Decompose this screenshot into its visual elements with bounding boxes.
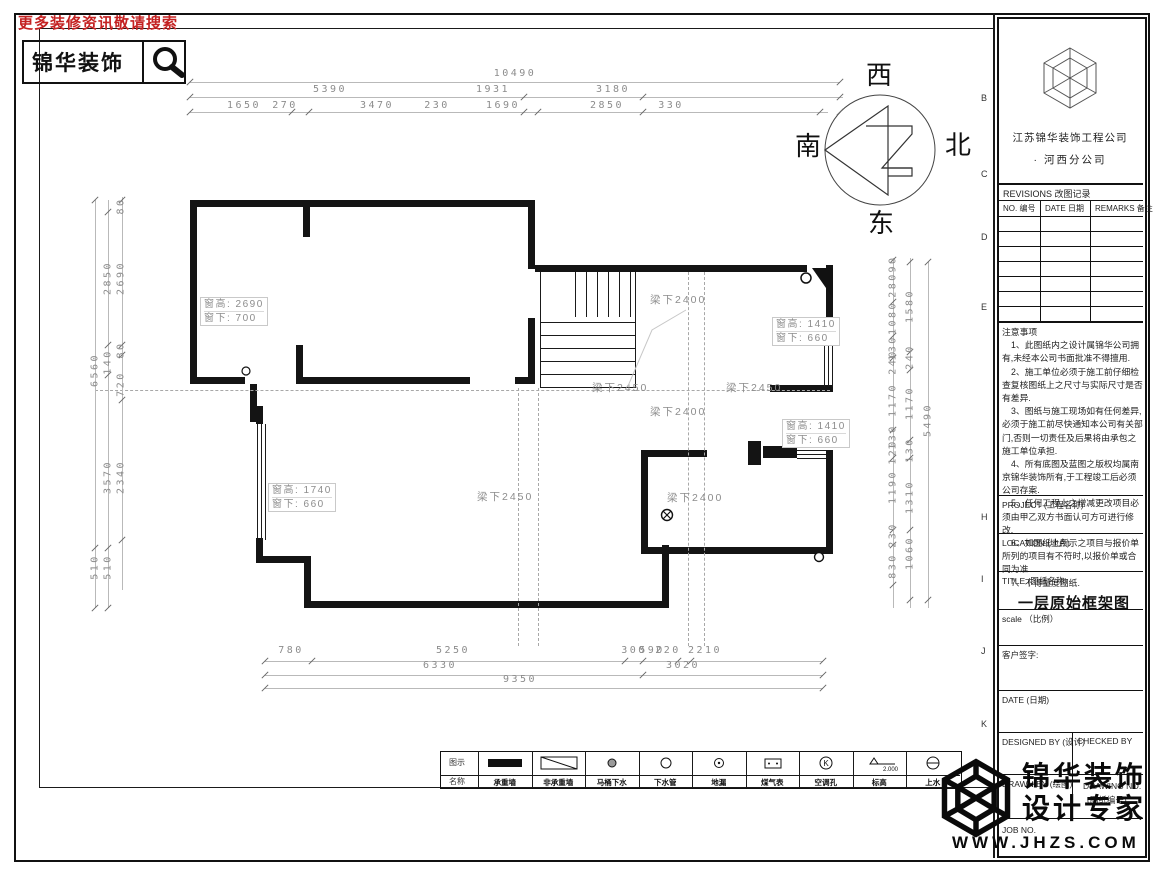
footer-brand-line1: 锦华装饰 (1022, 762, 1146, 792)
panel-field-label: DATE (日期) (1002, 694, 1049, 706)
footer-cube-logo (936, 758, 1016, 838)
notes-block: 注意事项 1、此图纸内之设计属锦华公司拥有,未经本公司书面批准不得擅用.2、施工… (1002, 326, 1144, 590)
notes-title: 注意事项 (1002, 326, 1144, 339)
revisions-column-header: REMARKS 备注 (1095, 203, 1153, 214)
legend-col-line (585, 751, 586, 787)
panel-field-label: scale （比例） (1002, 613, 1058, 625)
legend-item-name: 标高 (872, 777, 887, 788)
legend-col-line (906, 751, 907, 787)
door-leaf-symbol (812, 268, 833, 298)
zone-letter: K (981, 719, 987, 729)
legend-item-name: 地漏 (711, 777, 726, 788)
zone-letter: H (981, 512, 988, 522)
panel-row-line (997, 732, 1143, 733)
pipe-symbol (801, 273, 811, 283)
window-label: 窗高: 2690窗下: 700 (200, 297, 268, 326)
stair-walkline (628, 310, 686, 386)
zone-letter: J (981, 646, 986, 656)
sheet-title: 一层原始框架图 (1018, 592, 1130, 613)
legend-item-name: 非承重墙 (543, 777, 573, 788)
legend-symbol-meter-box (750, 752, 796, 774)
company-name: 江苏锦华装饰工程公司 (1002, 130, 1138, 145)
note-item: 4、所有底图及蓝图之版权均属南京锦华装饰所有,于工程竣工后必须公司存案. (1002, 458, 1144, 498)
revisions-row-line (997, 261, 1143, 262)
note-item: 1、此图纸内之设计属锦华公司拥有,未经本公司书面批准不得擅用. (1002, 339, 1144, 365)
zone-letter: C (981, 169, 988, 179)
company-cube-logo (1038, 45, 1102, 111)
footer-website: WWW.JHZS.COM (952, 833, 1140, 853)
svg-text:K: K (823, 759, 829, 768)
zone-letter: I (981, 574, 984, 584)
zone-letter: D (981, 232, 988, 242)
legend-symbol-k-circle: K (803, 752, 849, 774)
revisions-header: REVISIONS 改图记录 (1003, 187, 1091, 200)
legend-name-row-label: 名称 (449, 776, 465, 787)
plan-symbols (0, 0, 1158, 873)
revisions-row-line (997, 291, 1143, 292)
legend-col-line (746, 751, 747, 787)
legend-symbol-circle (643, 752, 689, 774)
legend-item-name: 下水管 (654, 777, 677, 788)
legend-item-name: 马桶下水 (597, 777, 627, 788)
zone-letter: B (981, 93, 987, 103)
revisions-row-line (997, 246, 1143, 247)
revisions-row-line (997, 276, 1143, 277)
legend-item-name: 承重墙 (494, 777, 517, 788)
note-item: 6、如图纸上所示之项目与报价单所列的项目有不符时,以报价单或合同为准. (1002, 537, 1144, 577)
legend-symbol-diag-wall (536, 752, 582, 774)
panel-row-line (997, 645, 1143, 646)
legend-col-line (799, 751, 800, 787)
company-branch: · 河西分公司 (1002, 152, 1138, 167)
drawing-sheet: 更多装修资讯敬请搜索 锦华装饰 西 南 北 东 1049053901931318… (0, 0, 1158, 873)
legend-symbol-solid-wall (482, 752, 528, 774)
legend-col-line (692, 751, 693, 787)
legend-row-line (440, 775, 960, 776)
window-label: 窗高: 1410窗下: 660 (782, 419, 850, 448)
legend-symbol-dot-circle (696, 752, 742, 774)
panel-row-line (997, 690, 1143, 691)
legend-col-line (532, 751, 533, 787)
revisions-column-header: NO. 编号 (1003, 203, 1035, 214)
note-item: 3、图纸与施工现场如有任何差异,必须于施工前尽快通知本公司有关部门,否则一切责任… (1002, 405, 1144, 458)
legend-col-line (853, 751, 854, 787)
panel-field-label: CHECKED BY (1077, 736, 1132, 746)
pipe-symbol-2 (815, 553, 824, 562)
legend-col-line (478, 751, 479, 787)
note-item: 7、不得量度图纸. (1002, 577, 1144, 590)
window-label: 窗高: 1410窗下: 660 (772, 317, 840, 346)
revisions-row-line (997, 306, 1143, 307)
revisions-row-line (997, 231, 1143, 232)
note-item: 2、施工单位必须于施工前仔细检查复核图纸上之尺寸与实际尺寸是否有差异. (1002, 366, 1144, 406)
svg-text:2.000: 2.000 (883, 767, 899, 773)
legend-symbol-elevation: 2.000 (857, 752, 903, 774)
door-knob-symbol (242, 367, 250, 375)
footer-brand-line2: 设计专家 (1022, 794, 1146, 824)
legend-item-name: 煤气表 (761, 777, 784, 788)
panel-field-label: 客户签字: (1002, 649, 1038, 661)
revisions-column-header: DATE 日期 (1045, 203, 1084, 214)
legend-symbol-filled-circle (589, 752, 635, 774)
legend-symbol-row-label: 图示 (449, 757, 465, 768)
window-label: 窗高: 1740窗下: 660 (268, 483, 336, 512)
legend-item-name: 空调孔 (815, 777, 838, 788)
zone-letter: E (981, 302, 987, 312)
legend-col-line (639, 751, 640, 787)
note-item: 5、任何工程上之增减更改项目必须由甲乙双方书面认可方可进行修改. (1002, 497, 1144, 537)
